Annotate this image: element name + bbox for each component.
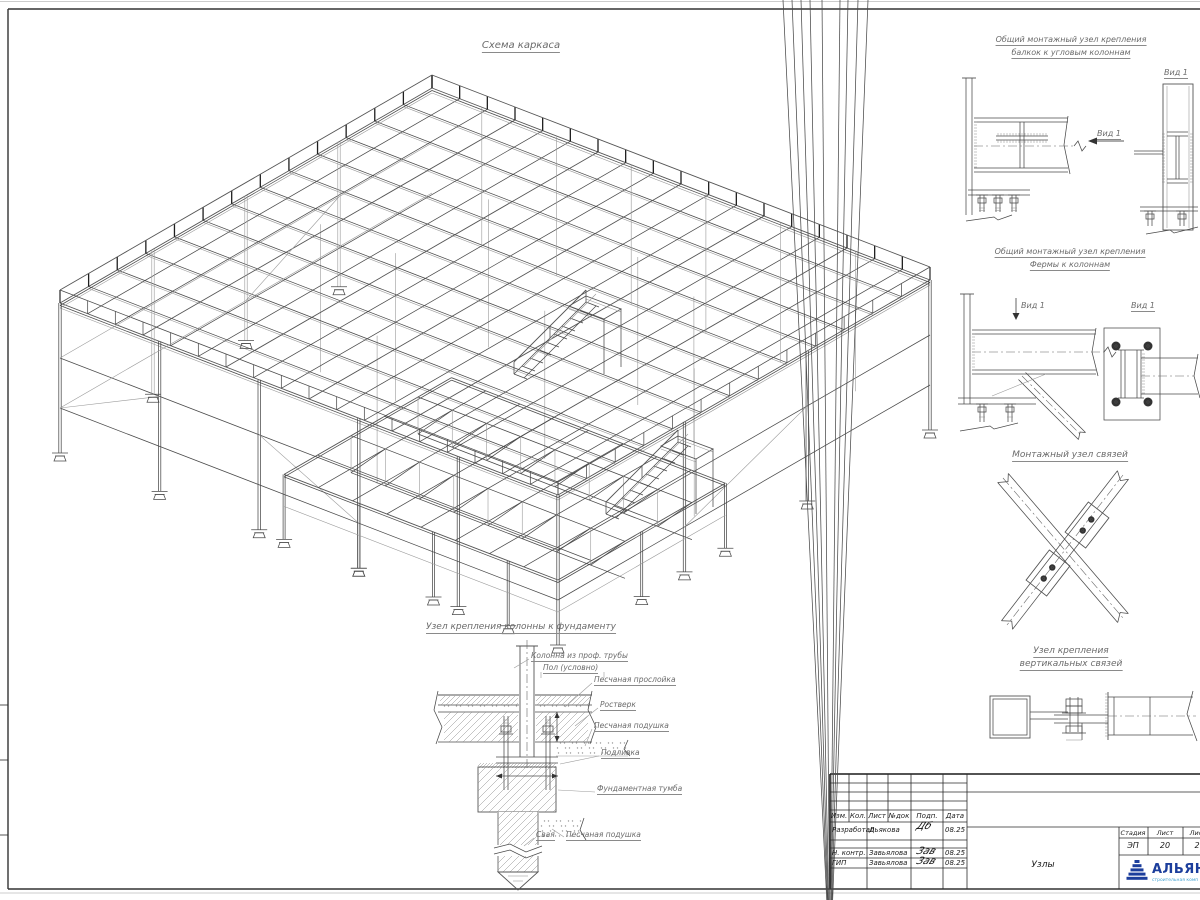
detail2-view-arrow-label: Вид 1 xyxy=(1021,301,1045,310)
detail2-title-line1: Общий монтажный узел крепления xyxy=(995,247,1146,258)
stamp-doc-name: Узлы xyxy=(1031,860,1054,870)
detail1-view-label: Вид 1 xyxy=(1164,68,1188,79)
stamp-header-kol: Кол. xyxy=(850,812,866,820)
stamp-role-nkontr: Н. контр. xyxy=(832,849,866,857)
detail4-title-line1: Узел крепления xyxy=(1033,646,1108,658)
stamp-header-list: Лист xyxy=(868,812,886,820)
company-logo-subtitle: строительная комп xyxy=(1152,878,1198,883)
label-floor: Пол (условно) xyxy=(543,663,598,674)
stamp-role-gip: ГИП xyxy=(832,859,846,867)
stamp-sheets-value: 2 xyxy=(1194,841,1199,850)
label-sand-pad: Песчаная подушка xyxy=(594,721,669,732)
label-sand-pad2: Песчаная подушка xyxy=(566,830,641,841)
label-sand-layer: Песчаная прослойка xyxy=(594,675,676,686)
stamp-name-gip: Завьялова xyxy=(869,859,907,867)
detail3-title: Монтажный узел связей xyxy=(1012,450,1128,462)
drawing-sheet: Схема каркаса Общий монтажный узел крепл… xyxy=(0,0,1200,900)
stamp-stage-header: Стадия xyxy=(1121,829,1146,837)
label-pile: Свая xyxy=(536,830,555,841)
label-column: Колонна из проф. трубы xyxy=(531,651,628,662)
main-title: Схема каркаса xyxy=(482,40,560,53)
company-logo-text: АЛЬЯН xyxy=(1152,862,1200,877)
detail1-title-line1: Общий монтажный узел крепления xyxy=(996,35,1147,46)
label-pedestal: Фундаментная тумба xyxy=(597,784,682,795)
label-grout: Подливка xyxy=(601,748,640,759)
detail2-title-line2: Фермы к колоннам xyxy=(1030,260,1110,271)
stamp-date-razrabotal: 08.25 xyxy=(945,826,965,834)
detail2-view-label: Вид 1 xyxy=(1131,301,1155,312)
stamp-header-data: Дата xyxy=(946,812,964,820)
stamp-sheet-value: 20 xyxy=(1160,841,1170,850)
label-grillage: Ростверк xyxy=(600,700,636,711)
stamp-sheet-header: Лист xyxy=(1157,829,1173,837)
stamp-sheets-header: Лис xyxy=(1190,829,1200,837)
stamp-name-razrabotal: Дьякова xyxy=(869,826,900,834)
stamp-header-podp: Подп. xyxy=(916,812,937,820)
foundation-title: Узел крепления колонны к фундаменту xyxy=(426,622,616,634)
detail4-title-line2: вертикальных связей xyxy=(1020,659,1123,671)
stamp-date-nkontr: 08.25 xyxy=(945,849,965,857)
stamp-name-nkontr: Завьялова xyxy=(869,849,907,857)
detail1-title-line2: балкок к угловым колоннам xyxy=(1011,48,1130,59)
detail1-view-arrow-label: Вид 1 xyxy=(1097,129,1121,140)
stamp-date-gip: 08.25 xyxy=(945,859,965,867)
stamp-header-izm: Изм. xyxy=(831,812,847,820)
stamp-header-ndok: №док xyxy=(889,812,910,820)
stamp-stage-value: ЭП xyxy=(1127,841,1139,850)
